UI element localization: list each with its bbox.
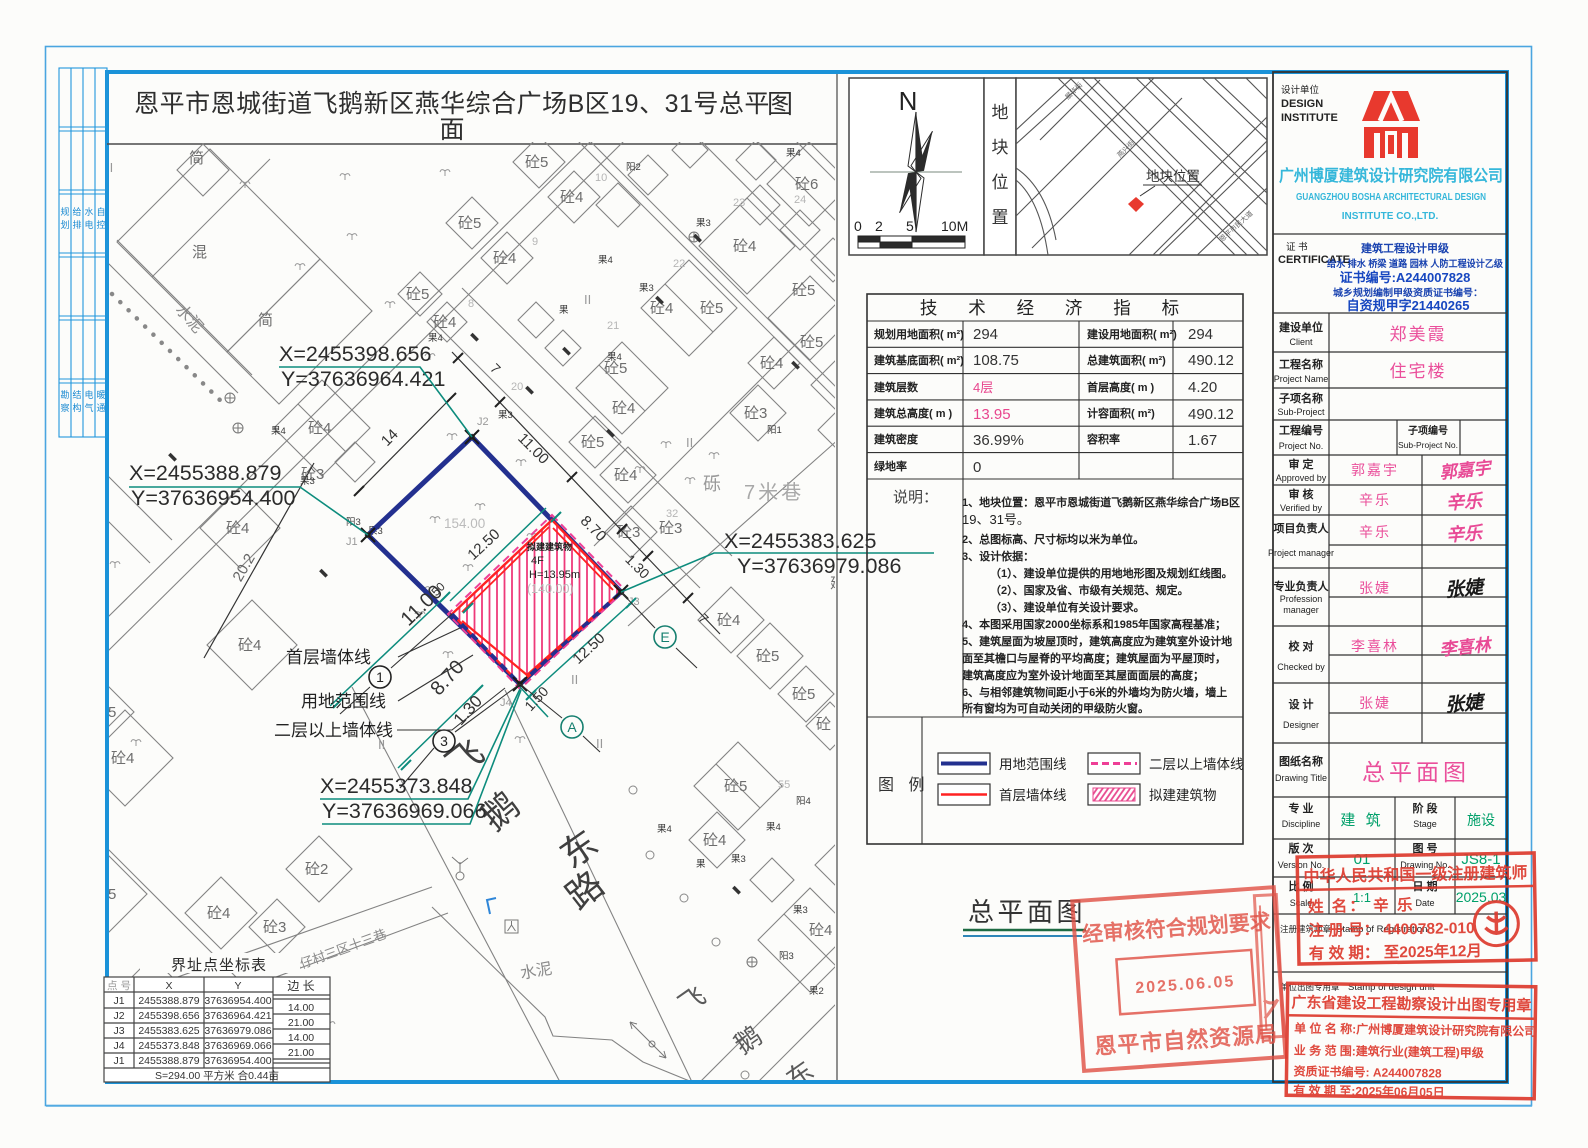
svg-text:砼6: 砼6: [795, 176, 818, 193]
svg-text:砼3: 砼3: [659, 520, 682, 537]
svg-text:砼2: 砼2: [305, 861, 328, 878]
svg-text:32: 32: [666, 508, 678, 520]
svg-text:项目负责人: 项目负责人: [1274, 521, 1330, 535]
svg-text:36.99%: 36.99%: [973, 432, 1024, 449]
svg-text:Client: Client: [1289, 337, 1313, 347]
svg-text:图纸名称: 图纸名称: [1279, 754, 1323, 768]
svg-text:证 书: 证 书: [1286, 242, 1308, 253]
svg-text:水: 水: [84, 206, 93, 217]
svg-text:砼4: 砼4: [207, 905, 230, 922]
svg-text:2: 2: [875, 218, 883, 234]
svg-text:阶 段: 阶 段: [1412, 801, 1437, 815]
svg-text:建筑高度应为室外设计地面至其屋面面层的高度；: 建筑高度应为室外设计地面至其屋面面层的高度；: [962, 668, 1204, 682]
svg-text:阳2: 阳2: [626, 162, 641, 173]
svg-text:广州博厦建筑设计研究院有限公司: 广州博厦建筑设计研究院有限公司: [1279, 166, 1503, 185]
svg-text:证书编号:A244007828: 证书编号:A244007828: [1340, 270, 1471, 285]
svg-text:4F: 4F: [531, 555, 544, 567]
svg-text:张婕: 张婕: [1359, 695, 1391, 711]
svg-text:21: 21: [607, 320, 619, 332]
svg-text:Y=37636964.421: Y=37636964.421: [281, 367, 445, 391]
svg-text:版 次: 版 次: [1288, 841, 1313, 855]
svg-text:37636954.400: 37636954.400: [204, 1055, 271, 1067]
svg-text:37636954.400: 37636954.400: [204, 995, 271, 1007]
svg-text:砼3: 砼3: [263, 919, 286, 936]
svg-text:Y=37636954.400: Y=37636954.400: [131, 486, 295, 510]
svg-text:察: 察: [60, 402, 69, 413]
svg-text:简: 简: [258, 312, 273, 329]
svg-text:砼4: 砼4: [703, 832, 726, 849]
svg-text:8: 8: [468, 298, 474, 310]
svg-text:Stage: Stage: [1413, 819, 1437, 829]
svg-text:施设: 施设: [1467, 812, 1495, 828]
svg-text:果3: 果3: [639, 283, 654, 294]
svg-text:3、设计依据：: 3、设计依据：: [962, 549, 1034, 563]
svg-text:设 计: 设 计: [1288, 697, 1313, 711]
svg-text:审 核: 审 核: [1288, 487, 1313, 501]
svg-text:砼4: 砼4: [238, 637, 261, 654]
svg-text:砼5: 砼5: [700, 300, 723, 317]
svg-text:果3: 果3: [498, 410, 513, 421]
svg-text:张婕: 张婕: [1444, 691, 1487, 716]
svg-text:建设用地面积( m²): 建设用地面积( m²): [1087, 327, 1177, 341]
svg-text:建筑工程设计甲级: 建筑工程设计甲级: [1361, 241, 1450, 255]
svg-text:2455388.879: 2455388.879: [138, 995, 199, 1007]
svg-text:Profession: Profession: [1280, 594, 1323, 604]
svg-text:自资规甲字21440265: 自资规甲字21440265: [1347, 298, 1470, 313]
svg-text:37636969.066: 37636969.066: [204, 1040, 271, 1052]
svg-text:Verified by: Verified by: [1280, 503, 1323, 513]
svg-text:果: 果: [559, 305, 569, 316]
svg-text:业 务 范 围:建筑行业(建筑工程)甲级: 业 务 范 围:建筑行业(建筑工程)甲级: [1294, 1042, 1484, 1060]
svg-text:（1）、建设单位提供的用地地形图及规划红线图。: （1）、建设单位提供的用地地形图及规划红线图。: [990, 566, 1233, 580]
svg-text:J1: J1: [113, 995, 124, 1007]
svg-text:首层高度( m ): 首层高度( m ): [1087, 380, 1155, 394]
svg-text:J3: J3: [113, 1025, 124, 1037]
svg-text:21.00: 21.00: [288, 1047, 314, 1059]
svg-text:校 对: 校 对: [1288, 639, 1313, 653]
svg-text:专业负责人: 专业负责人: [1274, 579, 1330, 593]
svg-text:辛乐: 辛乐: [1359, 492, 1391, 508]
svg-text:砼3: 砼3: [744, 405, 767, 422]
svg-text:计容面积( m²): 计容面积( m²): [1087, 406, 1155, 420]
svg-text:规: 规: [60, 207, 69, 217]
svg-text:294: 294: [973, 326, 998, 343]
svg-text:砼5: 砼5: [800, 334, 823, 351]
svg-text:恩平市恩城街道飞鹅新区燕华综合广场B区19、31号总平: 恩平市恩城街道飞鹅新区燕华综合广场B区19、31号总平: [134, 90, 770, 118]
svg-text:工程名称: 工程名称: [1279, 357, 1323, 371]
svg-text:砼4: 砼4: [493, 250, 516, 267]
svg-text:E: E: [660, 629, 669, 645]
svg-text:气: 气: [84, 402, 93, 413]
svg-text:首层墙体线: 首层墙体线: [999, 788, 1067, 803]
svg-text:154.00: 154.00: [444, 516, 485, 531]
svg-text:容积率: 容积率: [1086, 432, 1120, 446]
svg-text:Y: Y: [234, 980, 241, 992]
svg-text:砼5: 砼5: [458, 215, 481, 232]
svg-text:X=2455398.656: X=2455398.656: [279, 342, 431, 366]
svg-text:砾: 砾: [703, 474, 721, 494]
svg-text:排: 排: [72, 219, 81, 230]
svg-text:2455383.625: 2455383.625: [138, 1025, 199, 1037]
svg-text:面: 面: [439, 116, 464, 144]
svg-text:J4: J4: [500, 697, 512, 709]
svg-text:Checked by: Checked by: [1277, 662, 1325, 672]
svg-text:砼4: 砼4: [614, 467, 637, 484]
svg-text:砼4: 砼4: [433, 314, 456, 331]
svg-text:辛乐: 辛乐: [1359, 524, 1391, 540]
svg-text:J1: J1: [346, 536, 358, 548]
svg-text:砼4: 砼4: [560, 189, 583, 206]
svg-text:地块位置: 地块位置: [1146, 169, 1200, 184]
svg-text:490.12: 490.12: [1188, 406, 1234, 423]
svg-text:暖: 暖: [96, 389, 105, 400]
svg-text:GUANGZHOU BOSHA ARCHITECTURAL: GUANGZHOU BOSHA ARCHITECTURAL DESIGN: [1296, 192, 1486, 203]
svg-text:拟建建筑物: 拟建建筑物: [1149, 788, 1217, 803]
svg-text:建筑基底面积( m²): 建筑基底面积( m²): [874, 353, 964, 367]
svg-text:37636979.086: 37636979.086: [204, 1025, 271, 1037]
svg-text:广东省建设工程勘察设计出图专用章: 广东省建设工程勘察设计出图专用章: [1291, 993, 1531, 1014]
svg-text:规划用地面积( m²): 规划用地面积( m²): [874, 327, 964, 341]
svg-text:6、与相邻建筑物间距小于6米的外墙均为防火墙，墙上: 6、与相邻建筑物间距小于6米的外墙均为防火墙，墙上: [962, 685, 1227, 699]
svg-text:果3: 果3: [731, 854, 746, 865]
svg-text:1.67: 1.67: [1188, 432, 1217, 449]
svg-text:划: 划: [60, 219, 69, 230]
svg-text:INSTITUTE CO.,LTD.: INSTITUTE CO.,LTD.: [1342, 211, 1439, 222]
svg-text:果3: 果3: [696, 218, 711, 229]
svg-text:X=2455383.625: X=2455383.625: [724, 529, 876, 553]
svg-text:21.00: 21.00: [288, 1017, 314, 1029]
svg-text:住宅楼: 住宅楼: [1390, 362, 1447, 381]
svg-text:manager: manager: [1283, 605, 1319, 615]
svg-text:果4: 果4: [766, 822, 781, 833]
svg-text:J2: J2: [477, 416, 489, 428]
svg-text:108.75: 108.75: [973, 352, 1019, 369]
svg-text:所有窗均为可自动关闭的甲级防火窗。: 所有窗均为可自动关闭的甲级防火窗。: [962, 701, 1149, 715]
svg-text:建筑密度: 建筑密度: [874, 432, 919, 446]
svg-text:果3: 果3: [793, 905, 808, 916]
svg-text:Sub-Project No.: Sub-Project No.: [1398, 440, 1458, 450]
svg-text:设计单位: 设计单位: [1281, 84, 1320, 96]
svg-text:J2: J2: [113, 1010, 124, 1022]
svg-text:电: 电: [84, 219, 93, 230]
svg-text:电: 电: [84, 389, 93, 400]
svg-text:给水 排水 桥梁 道路 园林 人防工程设计乙级: 给水 排水 桥梁 道路 园林 人防工程设计乙级: [1327, 258, 1503, 270]
svg-text:INSTITUTE: INSTITUTE: [1281, 112, 1338, 124]
svg-text:14.00: 14.00: [288, 1032, 314, 1044]
svg-text:阳3: 阳3: [779, 951, 794, 962]
svg-text:首层墙体线: 首层墙体线: [286, 648, 371, 667]
svg-text:工程编号: 工程编号: [1279, 423, 1323, 437]
svg-text:01: 01: [1354, 851, 1371, 868]
svg-text:20: 20: [511, 381, 523, 393]
svg-text:技 术 经 济 指 标: 技 术 经 济 指 标: [920, 298, 1192, 318]
svg-text:砼5: 砼5: [792, 686, 815, 703]
svg-text:（3）、建设单位有关设计要求。: （3）、建设单位有关设计要求。: [990, 600, 1145, 614]
svg-text:有 效 期 至:2025年06月05日: 有 效 期 至:2025年06月05日: [1293, 1082, 1445, 1099]
svg-text:Y=37636979.086: Y=37636979.086: [737, 554, 901, 578]
svg-text:图 例: 图 例: [878, 776, 929, 794]
svg-text:总平面图: 总平面图: [968, 897, 1086, 927]
svg-text:审 定: 审 定: [1288, 457, 1313, 471]
svg-text:说明：: 说明：: [893, 489, 938, 506]
svg-text:II: II: [584, 292, 591, 307]
svg-text:简: 简: [189, 150, 204, 167]
svg-text:X=2455388.879: X=2455388.879: [129, 461, 281, 485]
svg-text:0: 0: [973, 459, 981, 476]
svg-text:用地范围线: 用地范围线: [301, 692, 386, 711]
svg-text:(140.00): (140.00): [527, 582, 574, 596]
svg-text:490.12: 490.12: [1188, 352, 1234, 369]
svg-text:1、地块位置：恩平市恩城街道飞鹅新区燕华综合广场B区: 1、地块位置：恩平市恩城街道飞鹅新区燕华综合广场B区: [962, 495, 1240, 509]
svg-text:Y=37636969.066: Y=37636969.066: [322, 799, 486, 823]
svg-text:Approved by: Approved by: [1276, 473, 1327, 483]
svg-text:砼: 砼: [816, 716, 831, 733]
svg-text:通: 通: [96, 403, 105, 413]
svg-text:图: 图: [767, 89, 793, 119]
svg-text:3: 3: [440, 733, 448, 749]
svg-text:Project Name: Project Name: [1274, 374, 1329, 384]
svg-text:砼4: 砼4: [717, 612, 740, 629]
svg-text:果: 果: [696, 859, 706, 870]
svg-text:砼4: 砼4: [612, 400, 635, 417]
svg-text:22: 22: [673, 258, 685, 270]
svg-text:2、总图标高、尺寸标均以米为单位。: 2、总图标高、尺寸标均以米为单位。: [962, 532, 1144, 546]
svg-text:砼4: 砼4: [308, 420, 331, 437]
svg-text:13.95: 13.95: [973, 406, 1011, 423]
svg-text:李喜林: 李喜林: [1351, 638, 1399, 654]
svg-text:总平面图: 总平面图: [1362, 759, 1470, 785]
svg-text:2455398.656: 2455398.656: [138, 1010, 199, 1022]
svg-text:张婕: 张婕: [1444, 576, 1487, 601]
svg-text:（2）、国家及省、市级有关规范、规定。: （2）、国家及省、市级有关规范、规定。: [990, 583, 1189, 597]
svg-text:砼5: 砼5: [724, 778, 747, 795]
svg-text:子项编号: 子项编号: [1408, 424, 1448, 437]
svg-text:Discipline: Discipline: [1282, 819, 1321, 829]
svg-text:边 长: 边 长: [287, 979, 314, 993]
svg-text:J4: J4: [113, 1040, 124, 1052]
svg-text:混: 混: [192, 244, 207, 261]
svg-text:用地范围线: 用地范围线: [999, 757, 1067, 772]
svg-text:子项名称: 子项名称: [1279, 391, 1323, 405]
svg-text:2455388.879: 2455388.879: [138, 1055, 199, 1067]
svg-text:5、建筑屋面为坡屋顶时，建筑高度应为建筑室外设计地: 5、建筑屋面为坡屋顶时，建筑高度应为建筑室外设计地: [962, 634, 1232, 648]
svg-text:0: 0: [854, 218, 862, 234]
svg-text:辛乐: 辛乐: [1445, 523, 1484, 546]
svg-text:张婕: 张婕: [1359, 580, 1391, 596]
svg-text:果4: 果4: [786, 148, 801, 159]
svg-text:绿地率: 绿地率: [874, 459, 907, 473]
svg-text:10: 10: [595, 172, 607, 184]
svg-text:Sub-Project: Sub-Project: [1277, 407, 1325, 417]
svg-text:置: 置: [992, 208, 1009, 227]
svg-text:勘: 勘: [60, 390, 69, 400]
svg-text:拟建建筑物: 拟建建筑物: [527, 541, 572, 552]
svg-text:果4: 果4: [657, 824, 672, 835]
svg-text:阳3: 阳3: [346, 517, 361, 528]
svg-text:砼5: 砼5: [792, 282, 815, 299]
svg-text:资质证书编号: A244007828: 资质证书编号: A244007828: [1293, 1063, 1442, 1080]
svg-text:5: 5: [906, 218, 914, 234]
svg-text:1: 1: [376, 669, 384, 685]
svg-text:果4: 果4: [607, 352, 622, 363]
svg-text:9: 9: [532, 236, 538, 248]
svg-text:砼5: 砼5: [406, 286, 429, 303]
svg-text:地: 地: [992, 103, 1009, 122]
svg-text:姓 名： 辛 乐: 姓 名： 辛 乐: [1308, 895, 1415, 916]
svg-text:4、本图采用国家2000坐标系和1985年国家高程基准；: 4、本图采用国家2000坐标系和1985年国家高程基准；: [962, 617, 1226, 631]
svg-text:二层以上墙体线: 二层以上墙体线: [1149, 757, 1244, 772]
svg-text:果3: 果3: [300, 476, 315, 487]
svg-text:Designer: Designer: [1283, 720, 1319, 730]
svg-text:建筑层数: 建筑层数: [874, 380, 919, 394]
svg-text:Project No.: Project No.: [1279, 441, 1324, 451]
svg-text:界址点坐标表: 界址点坐标表: [171, 957, 267, 974]
svg-text:II: II: [571, 672, 578, 687]
svg-text:J1: J1: [113, 1055, 124, 1067]
svg-text:果2: 果2: [809, 986, 824, 997]
svg-text:砼4: 砼4: [733, 238, 756, 255]
svg-text:55: 55: [778, 779, 790, 791]
svg-text:专 业: 专 业: [1288, 801, 1313, 815]
svg-text:结: 结: [72, 389, 81, 400]
svg-text:4层: 4层: [973, 380, 993, 395]
svg-text:10M: 10M: [941, 218, 968, 234]
svg-text:294: 294: [1188, 326, 1213, 343]
svg-text:二层以上墙体线: 二层以上墙体线: [274, 721, 393, 740]
svg-text:砼5: 砼5: [756, 648, 779, 665]
svg-text:H=13.95m: H=13.95m: [529, 569, 580, 581]
svg-text:阳1: 阳1: [767, 425, 782, 436]
svg-text:砼4: 砼4: [111, 750, 134, 767]
svg-text:块: 块: [992, 138, 1009, 157]
svg-text:砼5: 砼5: [525, 154, 548, 171]
svg-text:建设单位: 建设单位: [1279, 320, 1323, 334]
svg-text:Date: Date: [1415, 898, 1434, 908]
svg-text:4.20: 4.20: [1188, 379, 1217, 396]
svg-text:果4: 果4: [271, 426, 286, 437]
svg-text:2455373.848: 2455373.848: [138, 1040, 199, 1052]
svg-text:建 筑: 建 筑: [1340, 812, 1383, 829]
svg-text:Project manager: Project manager: [1268, 548, 1334, 558]
svg-text:给: 给: [72, 206, 81, 217]
svg-text:DESIGN: DESIGN: [1281, 98, 1323, 110]
svg-text:II: II: [686, 435, 693, 450]
svg-text:构: 构: [72, 402, 81, 413]
svg-text:点 号: 点 号: [107, 980, 131, 992]
svg-text:建筑总高度( m ): 建筑总高度( m ): [874, 406, 953, 420]
svg-text:A: A: [567, 719, 577, 735]
svg-text:面至其檐口与屋脊的平均高度；建筑屋面为平屋顶时，: 面至其檐口与屋脊的平均高度；建筑屋面为平屋顶时，: [962, 651, 1226, 665]
svg-text:果4: 果4: [598, 255, 613, 266]
svg-text:砼5: 砼5: [581, 434, 604, 451]
svg-text:总建筑面积( m²): 总建筑面积( m²): [1087, 353, 1166, 367]
svg-text:辛乐: 辛乐: [1445, 491, 1484, 514]
svg-text:23: 23: [733, 197, 745, 209]
svg-text:控: 控: [96, 219, 105, 230]
svg-text:7米巷: 7米巷: [744, 481, 804, 504]
svg-text:砼4: 砼4: [760, 355, 783, 372]
svg-text:14.00: 14.00: [288, 1002, 314, 1014]
svg-text:自: 自: [96, 206, 105, 217]
svg-text:Drawing Title: Drawing Title: [1275, 773, 1327, 783]
svg-text:砼4: 砼4: [809, 922, 832, 939]
svg-text:阳4: 阳4: [796, 796, 811, 807]
svg-text:19、31号。: 19、31号。: [962, 512, 1030, 527]
svg-text:X=2455373.848: X=2455373.848: [320, 774, 472, 798]
svg-text:位: 位: [992, 173, 1009, 192]
svg-text:N: N: [899, 86, 918, 116]
svg-text:郭嘉宇: 郭嘉宇: [1351, 462, 1399, 478]
svg-text:37636964.421: 37636964.421: [204, 1010, 271, 1022]
svg-text:X: X: [165, 980, 172, 992]
svg-text:郑美霞: 郑美霞: [1390, 325, 1447, 344]
svg-text:砼4: 砼4: [226, 520, 249, 537]
svg-text:24: 24: [794, 194, 806, 206]
svg-text:S=294.00 平方米 合0.44亩: S=294.00 平方米 合0.44亩: [155, 1069, 279, 1082]
